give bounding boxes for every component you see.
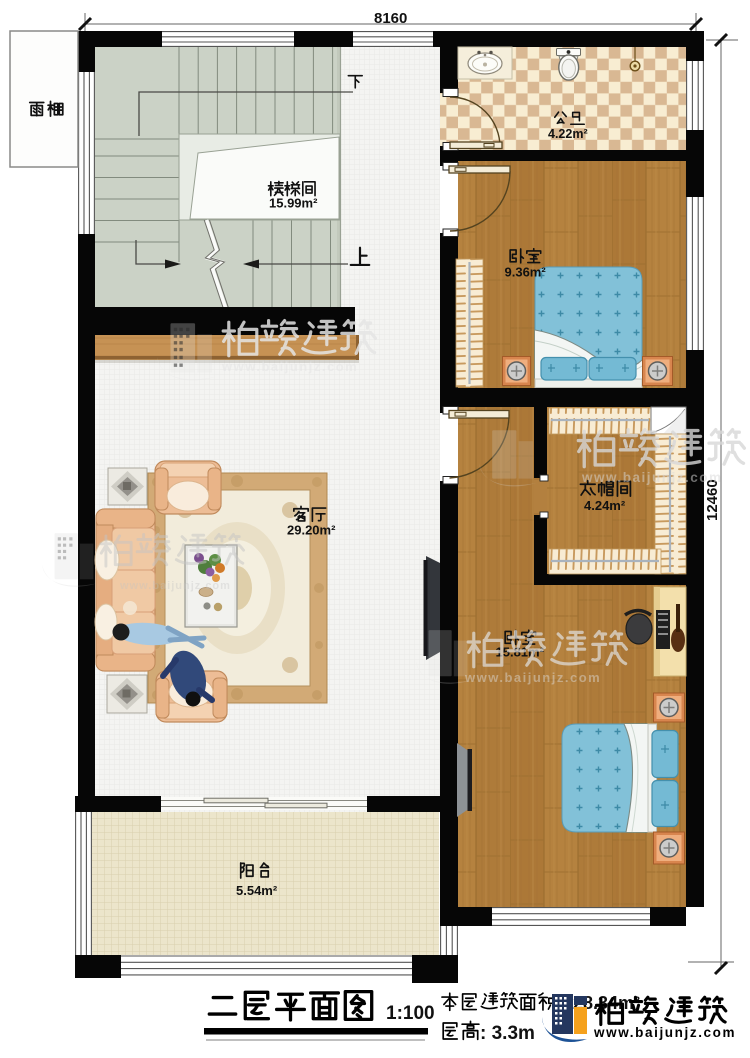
svg-text:4.22m²: 4.22m² xyxy=(548,127,588,141)
svg-text:15.99m²: 15.99m² xyxy=(269,196,318,211)
svg-text:4.24m²: 4.24m² xyxy=(584,498,626,513)
svg-text:5.54m²: 5.54m² xyxy=(236,883,278,898)
svg-text:9.36m²: 9.36m² xyxy=(505,265,547,280)
svg-text:12460: 12460 xyxy=(704,479,721,521)
svg-text:www.baijunjz.com: www.baijunjz.com xyxy=(119,580,231,592)
svg-text:www.baijunjz.com: www.baijunjz.com xyxy=(593,1025,736,1040)
svg-text:www.baijunjz.com: www.baijunjz.com xyxy=(464,670,601,685)
svg-text:8160: 8160 xyxy=(374,10,407,27)
svg-text:www.baijunjz.com: www.baijunjz.com xyxy=(221,359,358,374)
svg-text:1:100: 1:100 xyxy=(386,1003,435,1024)
svg-text:29.20m²: 29.20m² xyxy=(287,523,336,538)
svg-text:: 3.3m: : 3.3m xyxy=(480,1023,535,1044)
svg-text:www.baijunjz.com: www.baijunjz.com xyxy=(581,470,723,485)
